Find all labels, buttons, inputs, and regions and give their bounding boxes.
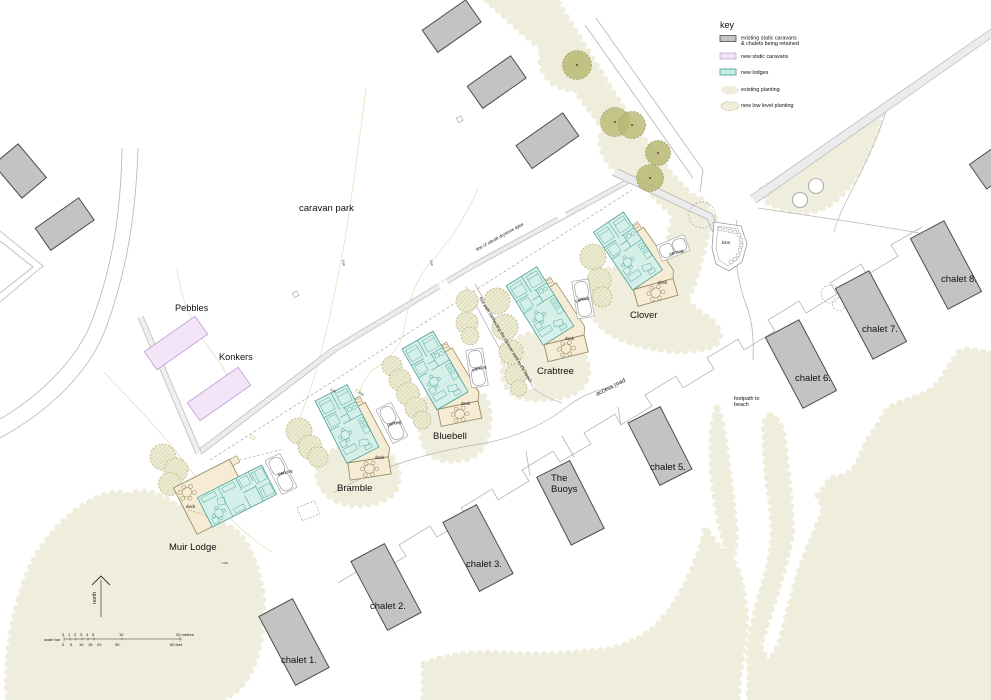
svg-text:new lodges: new lodges — [741, 70, 769, 76]
svg-text:chalet 1.: chalet 1. — [281, 655, 317, 666]
svg-text:chalet 6.: chalet 6. — [795, 373, 831, 384]
svg-text:Bramble: Bramble — [337, 483, 372, 494]
svg-text:deck: deck — [461, 401, 471, 406]
svg-text:deck: deck — [186, 504, 196, 509]
svg-text:Crabtree: Crabtree — [537, 366, 574, 377]
svg-text:beach: beach — [734, 402, 749, 408]
svg-text:deck: deck — [565, 336, 575, 341]
svg-text:new low level planting: new low level planting — [741, 103, 793, 109]
svg-text:Bluebell: Bluebell — [433, 431, 467, 442]
svg-text:Clover: Clover — [630, 310, 657, 321]
svg-text:10: 10 — [79, 642, 84, 647]
svg-text:20 metres: 20 metres — [176, 632, 194, 637]
svg-text:1.50: 1.50 — [222, 561, 228, 565]
svg-text:caravan park: caravan park — [299, 203, 354, 214]
svg-text:chalet 7.: chalet 7. — [862, 324, 898, 335]
svg-text:chalet 5.: chalet 5. — [650, 462, 686, 473]
svg-text:bins: bins — [722, 240, 731, 245]
svg-text:30: 30 — [115, 642, 120, 647]
svg-text:deck: deck — [658, 280, 668, 285]
svg-text:The: The — [551, 473, 567, 484]
svg-text:new static caravans: new static caravans — [741, 54, 789, 60]
svg-text:deck: deck — [375, 455, 385, 460]
svg-text:15: 15 — [88, 642, 93, 647]
svg-text:Muir Lodge: Muir Lodge — [169, 542, 217, 553]
svg-text:Konkers: Konkers — [219, 352, 253, 362]
svg-text:Buoys: Buoys — [551, 484, 578, 495]
svg-text:chalet 8.: chalet 8. — [941, 274, 977, 285]
svg-text:chalet 2.: chalet 2. — [370, 601, 406, 612]
svg-text:scale bar: scale bar — [44, 637, 61, 642]
svg-text:Pebbles: Pebbles — [175, 303, 209, 313]
svg-text:10: 10 — [119, 632, 124, 637]
svg-text:chalet 3.: chalet 3. — [466, 559, 502, 570]
svg-text:north: north — [92, 592, 98, 604]
svg-text:key: key — [720, 20, 735, 30]
svg-text:& chalets being retained: & chalets being retained — [741, 41, 799, 47]
svg-text:20: 20 — [97, 642, 102, 647]
svg-text:60 feet: 60 feet — [170, 642, 183, 647]
svg-text:existing planting: existing planting — [741, 87, 780, 93]
